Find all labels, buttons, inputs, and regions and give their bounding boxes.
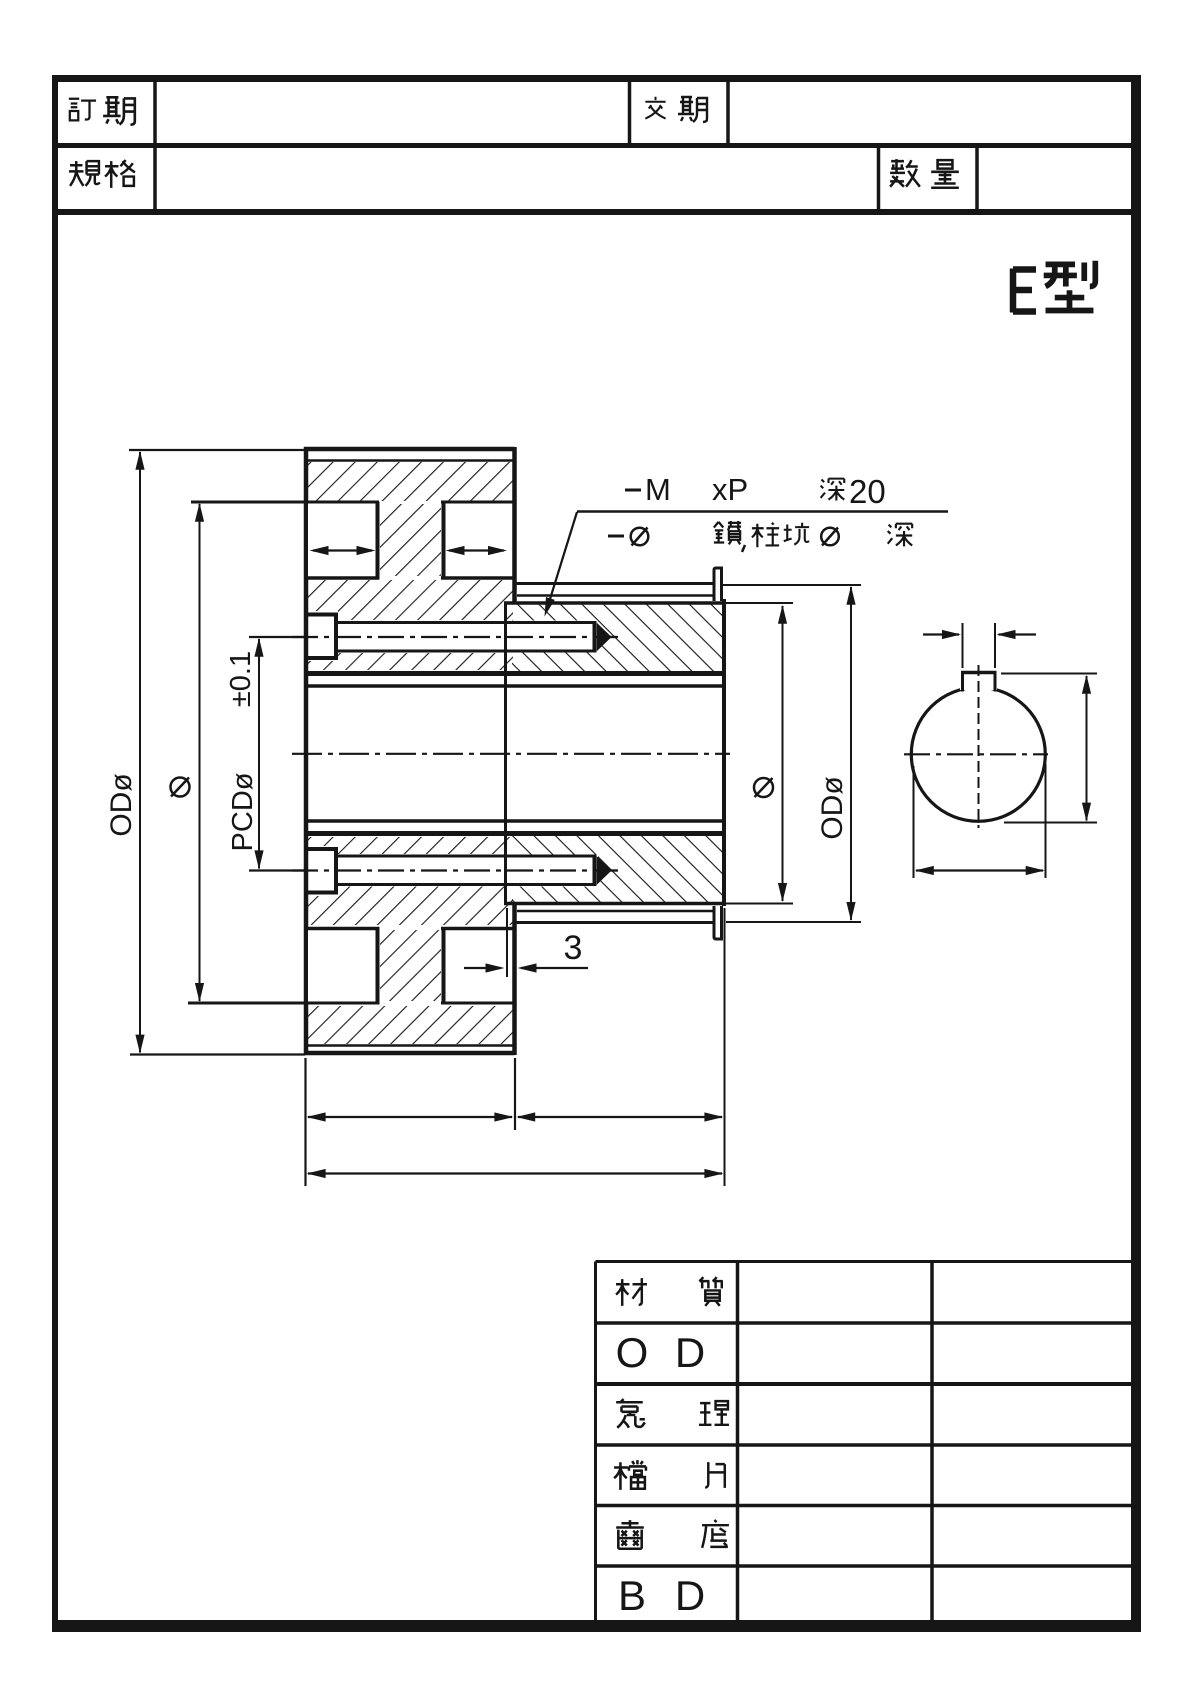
svg-text:PCDø: PCDø [227,772,259,851]
svg-text:3: 3 [564,929,583,967]
svg-text:B: B [618,1572,646,1619]
svg-text:20: 20 [849,473,886,510]
svg-text:xP: xP [712,472,748,507]
svg-text:±0.1: ±0.1 [225,651,257,707]
svg-text:D: D [675,1572,705,1619]
svg-text:M: M [645,472,671,507]
svg-text:O: O [616,1329,649,1376]
svg-text:ODø: ODø [816,776,849,839]
svg-text:D: D [675,1329,705,1376]
svg-text:ODø: ODø [105,773,138,836]
